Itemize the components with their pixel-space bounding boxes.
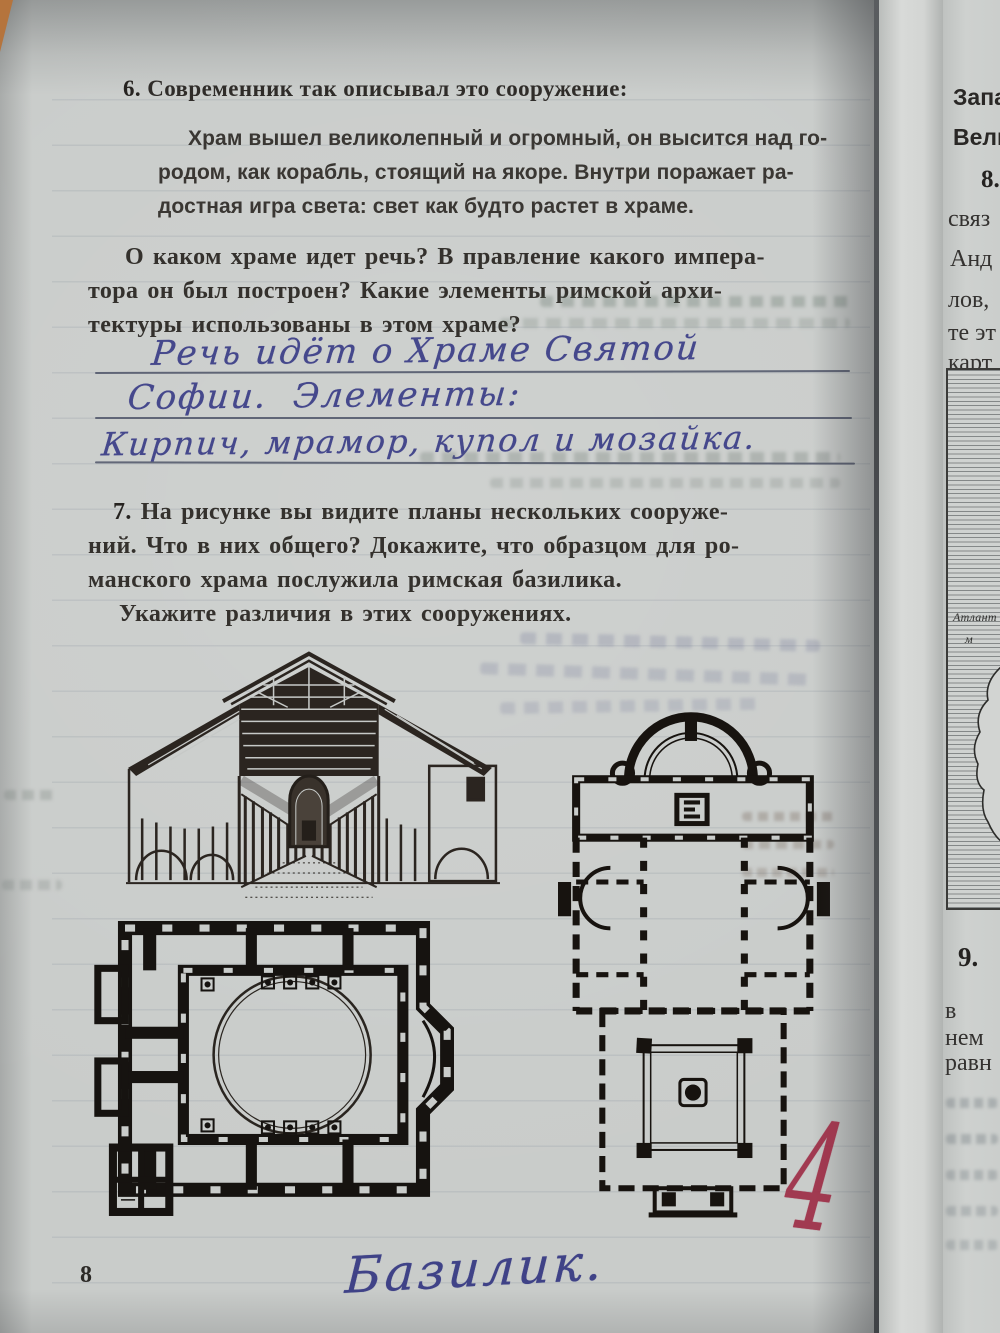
- bleed-through: [2, 880, 62, 890]
- page-curl-edge: [879, 0, 943, 1333]
- basilica-interior-cutaway-drawing: [126, 646, 502, 908]
- quote-line: Храм вышел великолепный и огромный, он в…: [188, 122, 848, 156]
- question-line: О каком храме идет речь? В правление как…: [125, 240, 878, 274]
- bleed-through: [946, 1170, 998, 1180]
- adjacent-text-fragment: Анд: [950, 246, 992, 273]
- quote-line: родом, как корабль, стоящий на якоре. Вн…: [158, 156, 848, 190]
- adjacent-text-fragment: лов,: [948, 287, 989, 314]
- handwritten-answer-line: Речь идёт о Храме Святой: [150, 328, 702, 374]
- bleed-through: [946, 1206, 998, 1216]
- question7-number: 7.: [113, 499, 132, 525]
- map-label: м: [965, 632, 973, 647]
- adjacent-item8-number: 8.: [981, 166, 1000, 194]
- adjacent-text-fragment: Запа: [953, 84, 1000, 111]
- bleed-through: [490, 478, 840, 488]
- map-label: Атлант: [953, 610, 997, 625]
- adjacent-item9-number: 9.: [958, 942, 978, 973]
- page-number: 8: [80, 1262, 92, 1289]
- adjacent-text-fragment: Вели: [953, 124, 1000, 151]
- roman-basilica-floor-plan: [558, 680, 832, 1220]
- bleed-through: [946, 1098, 998, 1108]
- question-line: манского храма послужила римская базилик…: [88, 563, 888, 597]
- question-line: Укажите различия в этих сооружениях.: [119, 597, 888, 631]
- question6-number: 6.: [123, 76, 141, 101]
- background-corner: [0, 0, 13, 52]
- map-fragment: Атлант м: [946, 368, 1000, 910]
- quote-paragraph: Храм вышел великолепный и огромный, он в…: [158, 122, 848, 224]
- workbook-photo: 6. Современник так описывал это сооружен…: [0, 0, 1000, 1333]
- bleed-through: [946, 1134, 998, 1144]
- bleed-through: [946, 1240, 998, 1250]
- question7-text: 7. На рисунке вы видите планы нескольких…: [88, 495, 888, 631]
- bleed-through: [500, 318, 850, 328]
- adjacent-text-fragment: связ: [948, 206, 990, 233]
- bleed-through: [420, 452, 840, 463]
- question6-heading-text: Современник так описывал это сооружение:: [147, 76, 628, 101]
- map-coastline: [948, 370, 1000, 908]
- domed-church-floor-plan: [94, 918, 454, 1218]
- quote-line: достная игра света: свет как будто расте…: [158, 190, 848, 224]
- figure-basilica-interior: [126, 646, 502, 908]
- handwritten-answer-line: Софии. Элементы:: [126, 374, 523, 418]
- question6-heading: 6. Современник так описывал это сооружен…: [123, 76, 628, 102]
- bleed-through: [540, 296, 850, 307]
- question-line: На рисунке вы видите планы нескольких со…: [141, 499, 729, 525]
- adjacent-text-fragment: в нем: [945, 998, 1000, 1052]
- figure-basilica-plan: [558, 680, 832, 1220]
- bleed-through: [4, 790, 58, 800]
- adjacent-text-fragment: те эт: [948, 320, 996, 347]
- adjacent-text-fragment: равн: [945, 1050, 992, 1077]
- question-line: ний. Что в них общего? Докажите, что обр…: [88, 529, 888, 563]
- figure-domed-plan: [94, 918, 454, 1218]
